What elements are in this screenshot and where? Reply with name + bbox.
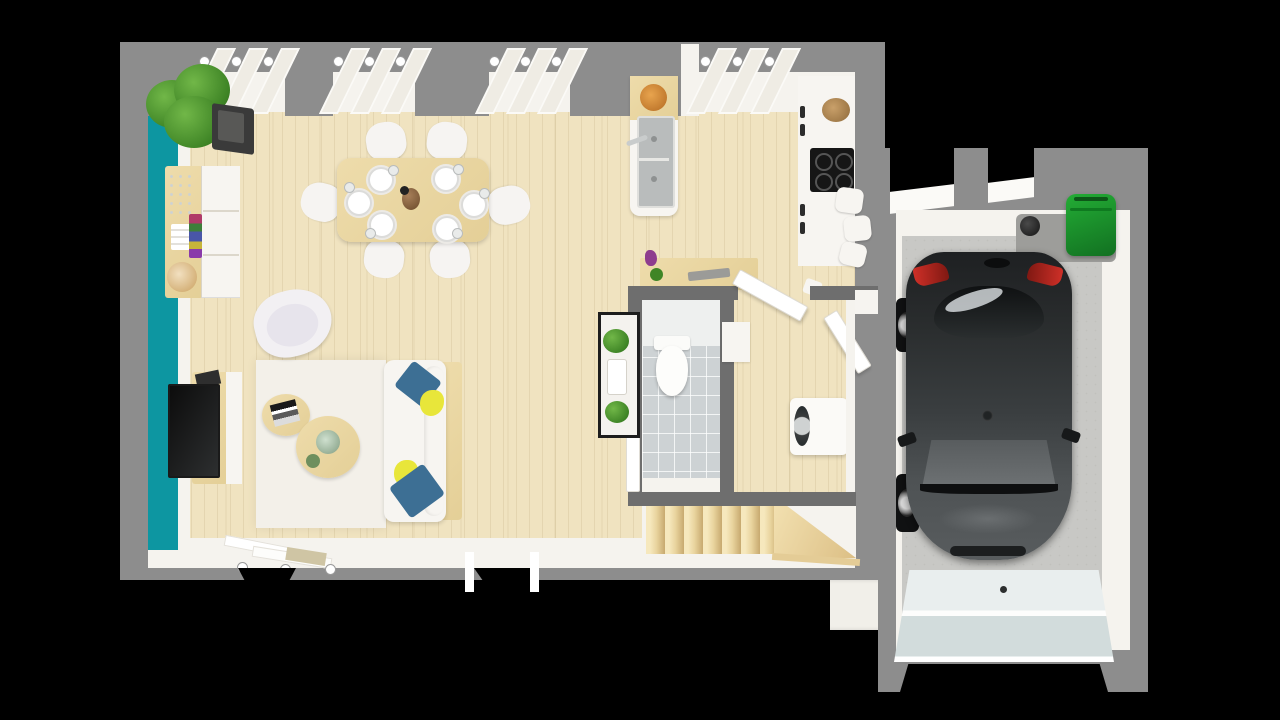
plant-shelf <box>598 312 640 438</box>
glass <box>365 228 376 239</box>
sliding-door-void <box>238 568 296 592</box>
door-sill <box>465 544 539 556</box>
burner <box>815 173 833 191</box>
drain <box>651 136 657 142</box>
burner <box>815 153 833 171</box>
tv <box>168 384 220 478</box>
garage-door-knob <box>1000 586 1007 593</box>
glassware <box>167 172 197 216</box>
sideboard-buffet <box>165 166 239 298</box>
glass <box>344 182 355 193</box>
books <box>189 214 202 258</box>
windshield <box>922 440 1056 488</box>
window-handle <box>700 56 711 67</box>
window-group <box>700 46 788 114</box>
glass <box>453 164 464 175</box>
antenna-fin <box>984 258 1010 268</box>
washer-door-ring <box>794 406 810 446</box>
tv-unit-front <box>226 372 242 484</box>
stool <box>834 186 864 215</box>
windshield-trim <box>920 484 1058 494</box>
glass <box>479 188 490 199</box>
magazines <box>270 399 301 427</box>
buffet-front <box>201 166 240 298</box>
sofa <box>384 360 464 522</box>
door-handle <box>325 564 336 575</box>
spare-wheel <box>1020 216 1040 236</box>
flower-vase <box>645 250 657 266</box>
garage-door-void <box>900 664 1108 692</box>
window-handle <box>732 56 743 67</box>
window-group <box>333 46 417 114</box>
window-handle <box>364 56 375 67</box>
bin-handle <box>1074 197 1108 201</box>
carafe <box>402 188 420 210</box>
cabinet-handle <box>800 204 805 216</box>
floorplan-render <box>0 0 1280 720</box>
kitchen-sink-unit <box>630 76 678 216</box>
shelf-plant <box>603 329 629 353</box>
cooktop <box>810 148 854 192</box>
window-group <box>489 46 573 114</box>
tray <box>688 268 731 281</box>
place-setting <box>346 190 372 216</box>
window-handle <box>520 56 531 67</box>
cabinet-handle <box>800 222 805 234</box>
coffee-table-large <box>296 416 360 478</box>
cabinet-handle <box>800 124 805 136</box>
carafe-cap <box>400 186 409 195</box>
stairs-risers <box>646 506 774 554</box>
door-jamb <box>465 552 474 592</box>
shelf-plant <box>605 401 629 423</box>
glass <box>388 165 399 176</box>
sink-basins <box>637 116 675 208</box>
buffet-seam <box>203 254 239 256</box>
small-plant <box>306 454 320 468</box>
sink-divider <box>639 158 669 161</box>
window-handle <box>551 56 562 67</box>
cabinet-handle <box>800 106 805 118</box>
partition-wall <box>628 492 856 506</box>
door-jamb <box>530 552 539 592</box>
window-handle <box>764 56 775 67</box>
roof-badge <box>982 410 993 421</box>
door-void <box>474 568 530 592</box>
front-grille <box>950 546 1026 556</box>
small-plant <box>650 268 663 281</box>
bin-lid-line <box>1070 208 1112 211</box>
wall-clock-box <box>212 103 254 155</box>
drain <box>651 176 657 182</box>
storage-basket <box>822 98 850 122</box>
car-hatchback <box>898 252 1078 564</box>
green-wheelie-bin <box>1066 194 1116 256</box>
window-handle <box>489 56 500 67</box>
toilet <box>654 336 690 398</box>
doormat <box>722 322 750 362</box>
stool <box>843 215 872 243</box>
glass-jar <box>167 262 197 292</box>
fruit-bowl <box>640 84 667 111</box>
wc-floor-south-face <box>642 478 720 492</box>
hall-east-wall-face <box>846 300 855 492</box>
shelf-vase <box>607 359 627 395</box>
clock-face <box>218 110 244 144</box>
garage-door <box>894 570 1114 662</box>
buffet-seam <box>203 210 239 212</box>
glass-vase-plant <box>316 430 340 454</box>
hood-gloss <box>938 504 1038 534</box>
window-handle <box>333 56 344 67</box>
armchair-seat <box>262 299 323 352</box>
washing-machine <box>790 398 848 455</box>
burner <box>835 153 853 171</box>
glass <box>452 228 463 239</box>
window-handle <box>395 56 406 67</box>
toilet-bowl <box>656 346 688 396</box>
mat <box>285 547 327 566</box>
window-handle <box>263 56 274 67</box>
